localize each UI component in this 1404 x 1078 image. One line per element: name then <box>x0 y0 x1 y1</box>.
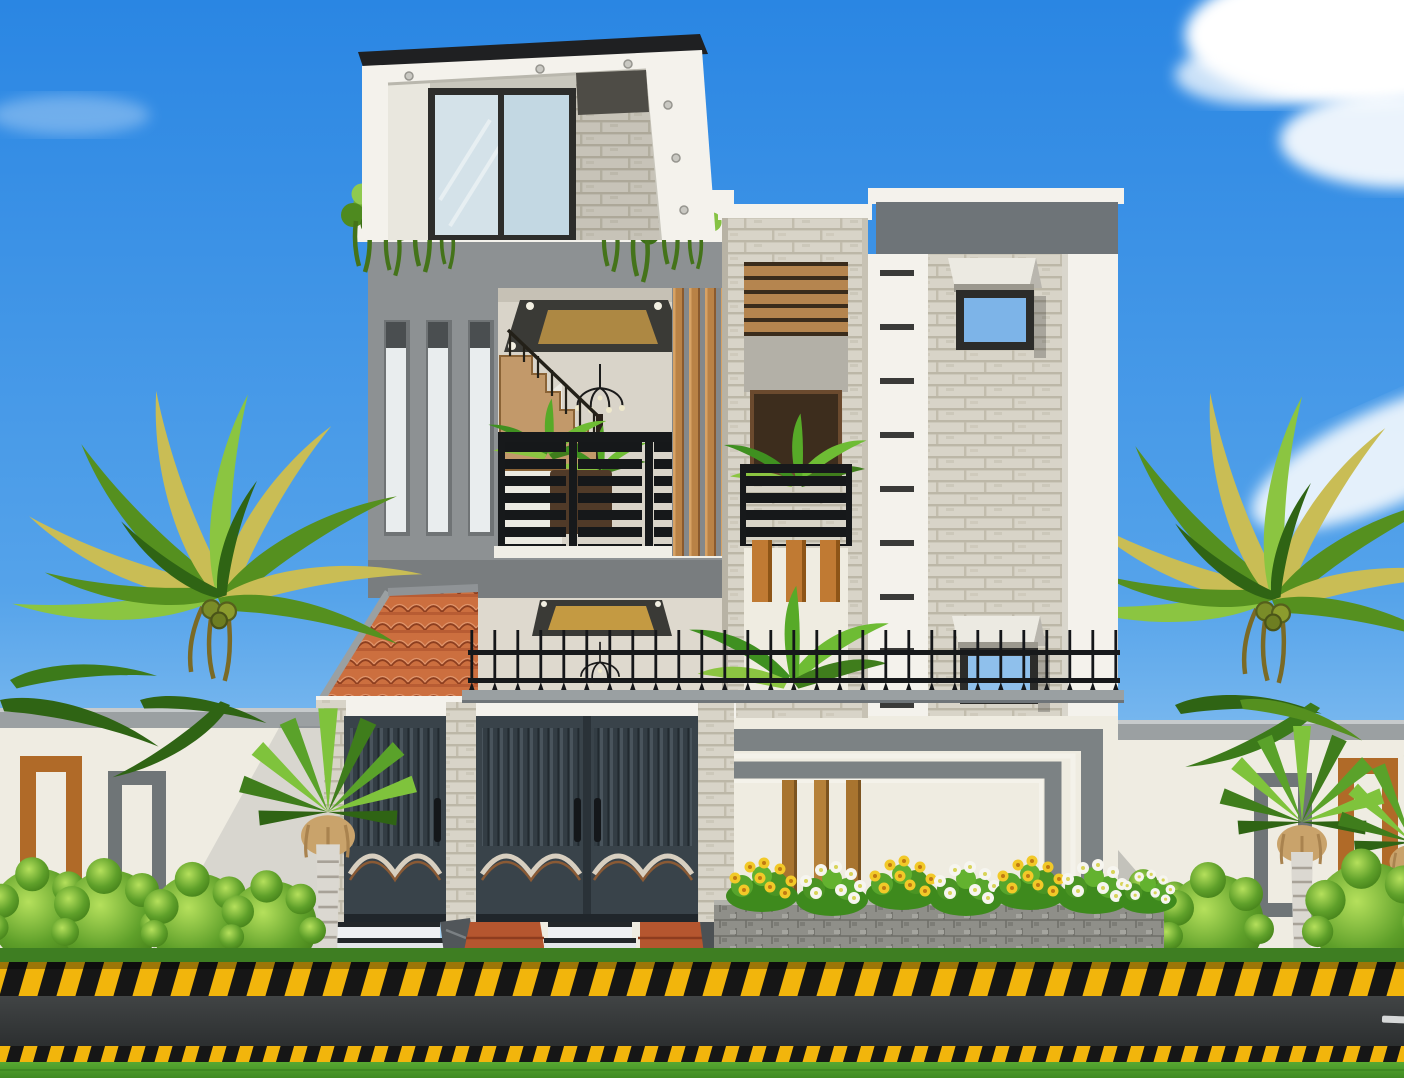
top-tower <box>358 34 716 240</box>
fence-rail <box>468 650 1120 655</box>
spear-fence <box>462 630 1124 703</box>
tower-brick-recess <box>576 70 660 240</box>
street <box>0 948 1404 1078</box>
second-floor <box>368 236 734 560</box>
fence-rail <box>468 678 1120 683</box>
pier-wall <box>744 336 848 392</box>
gate-double[interactable] <box>476 716 698 922</box>
architectural-render <box>0 0 1404 1078</box>
tower-window-upper <box>948 258 1046 358</box>
road <box>0 996 1404 1046</box>
gate-stile <box>583 716 591 922</box>
slit-windows <box>384 320 494 536</box>
roof-ridge <box>388 588 478 592</box>
verge-grass <box>0 948 1404 964</box>
curb-bottom <box>0 1046 1404 1062</box>
cloud <box>1175 45 1335 105</box>
recess-lit-wall <box>388 82 430 240</box>
tower-window <box>428 88 576 240</box>
louver-screen <box>672 288 728 556</box>
ceiling-wood <box>538 310 658 344</box>
render-canvas <box>0 0 1404 1078</box>
porch-ceiling-wood <box>548 606 654 630</box>
pier-coping <box>718 204 872 220</box>
lane-marking <box>1382 1016 1404 1024</box>
gate-handle[interactable] <box>574 798 581 842</box>
pier-railing <box>740 464 852 546</box>
gate-handle[interactable] <box>594 798 601 842</box>
gate-handle[interactable] <box>434 798 441 842</box>
tower-parapet-dark <box>876 202 1118 254</box>
tower-coping <box>868 188 1124 204</box>
